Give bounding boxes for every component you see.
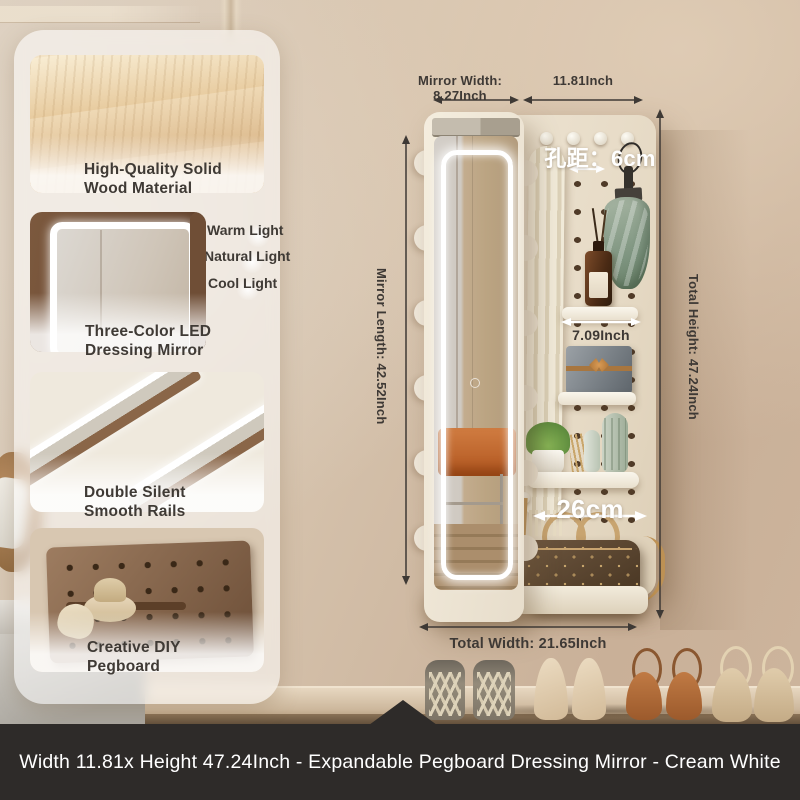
pegboard-shelf-2 xyxy=(558,392,636,405)
bag-area-width-label: 26cm xyxy=(538,494,642,525)
cactus-small xyxy=(584,430,600,472)
mirror-length-label: Mirror Length: 42.52Inch xyxy=(374,268,389,425)
crown-molding xyxy=(0,6,200,23)
umbrella-folds xyxy=(606,200,648,286)
scene: Mirror Width: 8.27Inch 11.81Inch Mirror … xyxy=(0,0,800,800)
mirror-width-label: Mirror Width: 8.27Inch xyxy=(396,73,524,103)
total-width-arrow xyxy=(418,620,638,634)
mirror-led-border xyxy=(441,150,513,580)
natural-light-label: Natural Light xyxy=(204,248,290,264)
cool-light-label: Cool Light xyxy=(208,275,277,291)
pegboard-width-label: 11.81Inch xyxy=(523,73,643,88)
mirror-touch-button xyxy=(470,378,480,388)
hole-distance-label: 孔距：6cm xyxy=(538,141,662,173)
mirror-top-rail xyxy=(432,118,520,137)
boot-right-laces xyxy=(477,672,511,716)
caption-bar: Width 11.81x Height 47.24Inch - Expandab… xyxy=(0,724,800,800)
shelf-depth-label: 7.09Inch xyxy=(564,327,638,343)
hat-dome xyxy=(94,578,126,602)
total-height-arrow xyxy=(653,108,667,620)
feature-label-pegboard: Creative DIY Pegboard xyxy=(87,639,197,677)
handbag-zipper xyxy=(530,548,632,550)
pegboard-shelf-3 xyxy=(527,472,639,488)
heel-right xyxy=(572,658,606,720)
warm-light-label: Warm Light xyxy=(207,222,283,238)
cactus-ridges xyxy=(604,418,626,470)
feature-label-rails: Double Silent Smooth Rails xyxy=(84,484,249,522)
total-height-label: Total Height: 47.24Inch xyxy=(686,274,701,420)
feature-label-wood: High-Quality Solid Wood Material xyxy=(84,161,236,199)
pegboard-width-arrow xyxy=(522,93,644,107)
wall-shadow-right xyxy=(660,130,790,630)
feature-label-led: Three-Color LED Dressing Mirror xyxy=(85,323,235,361)
heel-left xyxy=(534,658,568,720)
diffuser-label xyxy=(589,272,608,298)
caption-text: Width 11.81x Height 47.24Inch - Expandab… xyxy=(0,724,800,800)
total-width-label: Total Width: 21.65Inch xyxy=(420,636,636,652)
caption-pointer xyxy=(369,700,437,725)
mirror-length-arrow xyxy=(399,134,413,586)
